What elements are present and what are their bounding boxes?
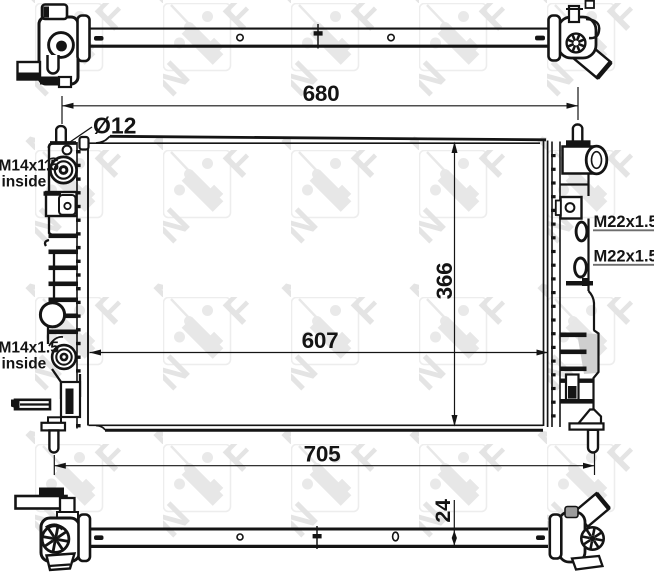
svg-text:607: 607 bbox=[302, 328, 339, 353]
svg-text:366: 366 bbox=[432, 263, 457, 300]
svg-text:24: 24 bbox=[431, 499, 455, 523]
svg-text:inside: inside bbox=[2, 355, 47, 372]
svg-text:705: 705 bbox=[304, 442, 341, 467]
svg-text:M14x1.5: M14x1.5 bbox=[0, 340, 59, 357]
svg-text:M22x1.5: M22x1.5 bbox=[594, 248, 654, 266]
svg-text:Ø12: Ø12 bbox=[93, 113, 136, 139]
svg-text:M14x1.5: M14x1.5 bbox=[0, 158, 59, 175]
svg-text:inside: inside bbox=[2, 173, 47, 190]
svg-text:680: 680 bbox=[303, 81, 340, 106]
svg-text:M22x1.5: M22x1.5 bbox=[594, 213, 654, 231]
